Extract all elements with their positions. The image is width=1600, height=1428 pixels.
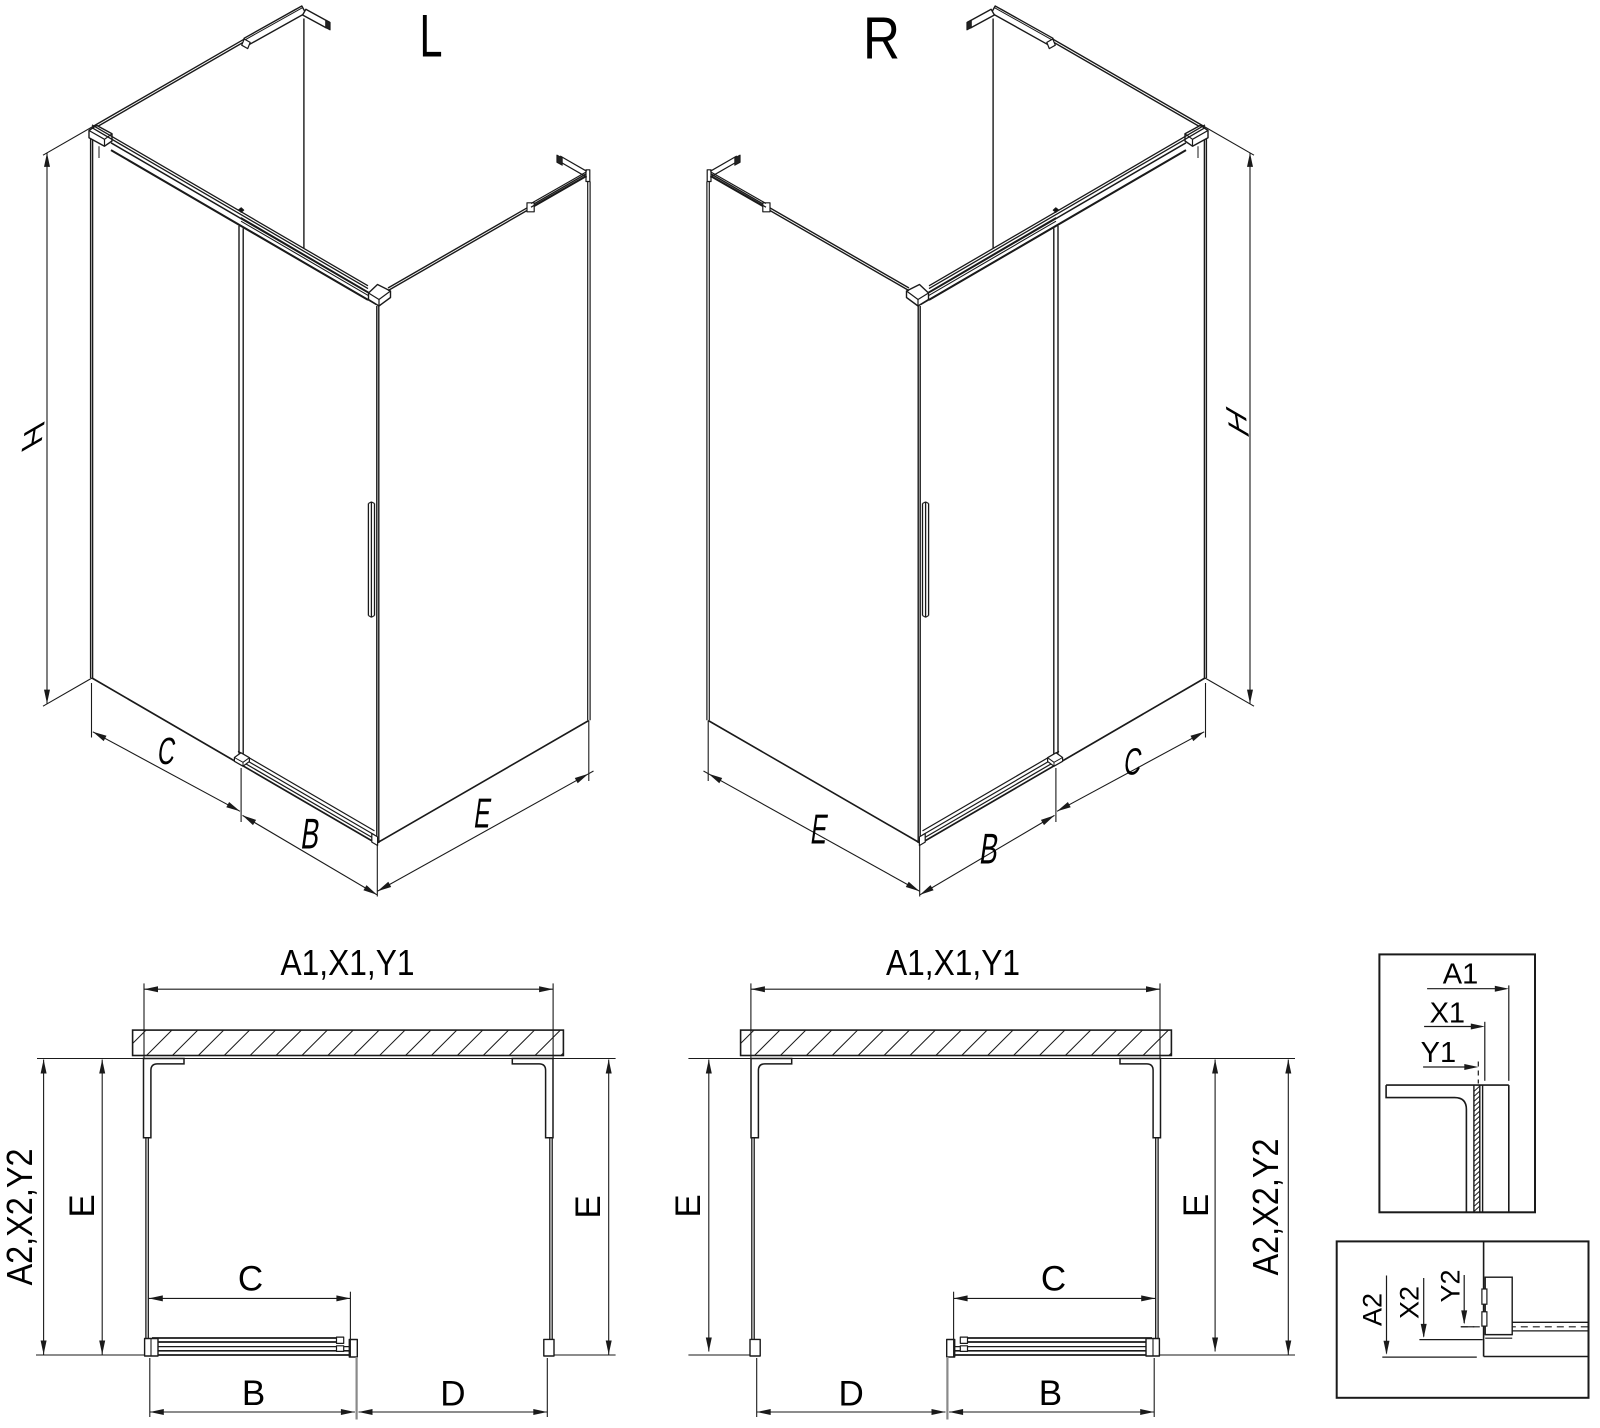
svg-text:Y1: Y1 — [1421, 1037, 1456, 1069]
svg-text:E: E — [1177, 1194, 1216, 1217]
svg-text:Y2: Y2 — [1435, 1269, 1465, 1302]
svg-text:A2: A2 — [1358, 1293, 1388, 1326]
svg-text:C: C — [238, 1260, 263, 1299]
svg-text:R: R — [863, 6, 900, 72]
svg-text:B: B — [1039, 1374, 1062, 1413]
svg-text:A2,X2,Y2: A2,X2,Y2 — [1245, 1139, 1286, 1276]
svg-text:C: C — [1041, 1260, 1066, 1299]
svg-text:X1: X1 — [1430, 998, 1465, 1030]
svg-text:B: B — [242, 1374, 265, 1413]
svg-text:A1: A1 — [1443, 959, 1478, 991]
svg-text:E: E — [63, 1194, 102, 1217]
svg-text:D: D — [838, 1375, 863, 1414]
svg-text:X2: X2 — [1394, 1286, 1424, 1319]
svg-text:A2,X2,Y2: A2,X2,Y2 — [0, 1149, 40, 1286]
svg-text:A1,X1,Y1: A1,X1,Y1 — [281, 942, 415, 983]
svg-text:E: E — [669, 1194, 708, 1217]
svg-text:D: D — [440, 1375, 465, 1414]
svg-text:E: E — [569, 1195, 608, 1218]
svg-text:L: L — [420, 3, 443, 70]
svg-text:A1,X1,Y1: A1,X1,Y1 — [886, 942, 1020, 983]
